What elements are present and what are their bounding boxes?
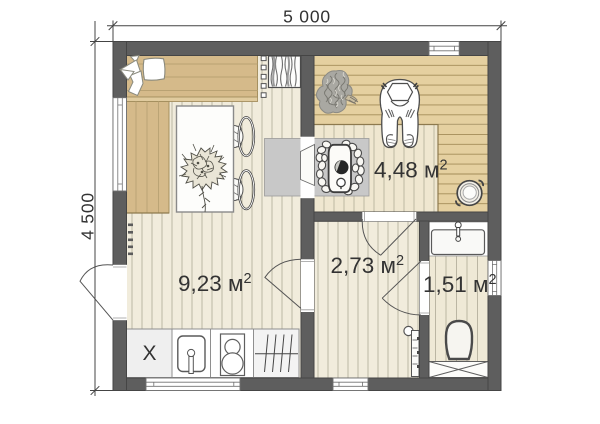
svg-text:5 000: 5 000	[283, 7, 331, 27]
svg-text:4,48 м2: 4,48 м2	[374, 158, 448, 183]
svg-text:1,51 м2: 1,51 м2	[423, 272, 497, 297]
svg-text:4 500: 4 500	[78, 192, 98, 240]
svg-text:9,23 м2: 9,23 м2	[178, 271, 252, 296]
svg-text:X: X	[142, 342, 156, 365]
svg-text:2,73 м2: 2,73 м2	[331, 253, 405, 278]
